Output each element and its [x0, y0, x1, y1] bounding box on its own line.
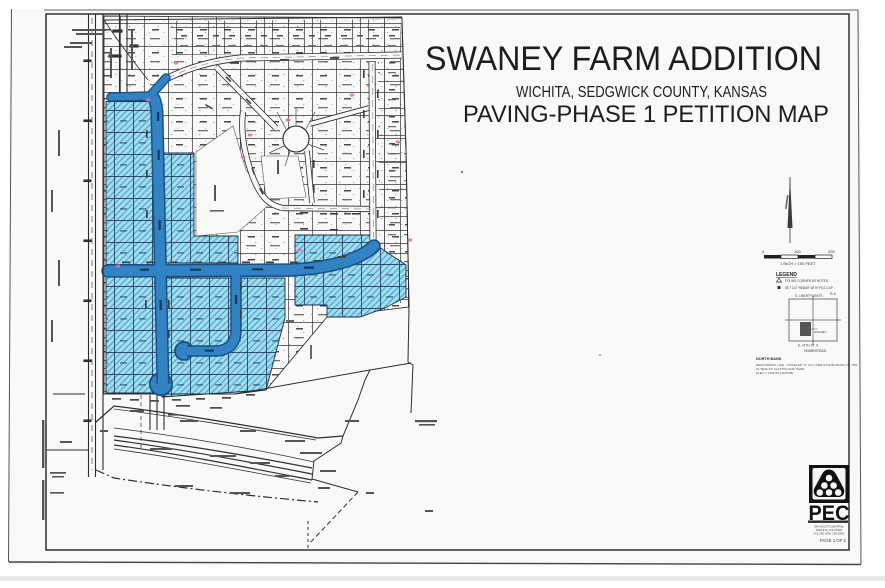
svg-text:NORTH BANK: NORTH BANK — [756, 357, 782, 361]
svg-text:R-6: R-6 — [830, 292, 836, 296]
svg-text:LEGEND: LEGEND — [776, 272, 797, 278]
svg-text:SWANEY: SWANEY — [814, 330, 827, 334]
svg-text:PAVING-PHASE 1 PETITION MAP: PAVING-PHASE 1 PETITION MAP — [463, 101, 829, 128]
svg-text:ELEV = 1349.30 (NAVD88): ELEV = 1349.30 (NAVD88) — [756, 371, 793, 375]
svg-text:SWANEY FARM ADDITION: SWANEY FARM ADDITION — [425, 40, 822, 78]
svg-text:1 INCH = 100 FEET: 1 INCH = 100 FEET — [780, 261, 816, 266]
svg-text:WICHITA, SEDGWICK COUNTY, KANS: WICHITA, SEDGWICK COUNTY, KANSAS — [516, 84, 767, 101]
svg-text:SET 1/2" REBAR WITH PLS CAP: SET 1/2" REBAR WITH PLS CAP — [785, 286, 833, 290]
svg-text:PAGE 1 OF 2: PAGE 1 OF 2 — [820, 538, 847, 543]
svg-text:HOMESTEAD: HOMESTEAD — [804, 349, 827, 353]
svg-text:S. LIBERTY UNITS: S. LIBERTY UNITS — [795, 294, 823, 298]
svg-text:316 262-2691 262-2691: 316 262-2691 262-2691 — [814, 532, 845, 536]
svg-text:100: 100 — [794, 249, 801, 254]
svg-text:FOUND CORNER AS NOTED: FOUND CORNER AS NOTED — [785, 279, 829, 283]
svg-text:E. 47TH ST. S.: E. 47TH ST. S. — [798, 344, 819, 348]
svg-text:200: 200 — [828, 249, 835, 254]
